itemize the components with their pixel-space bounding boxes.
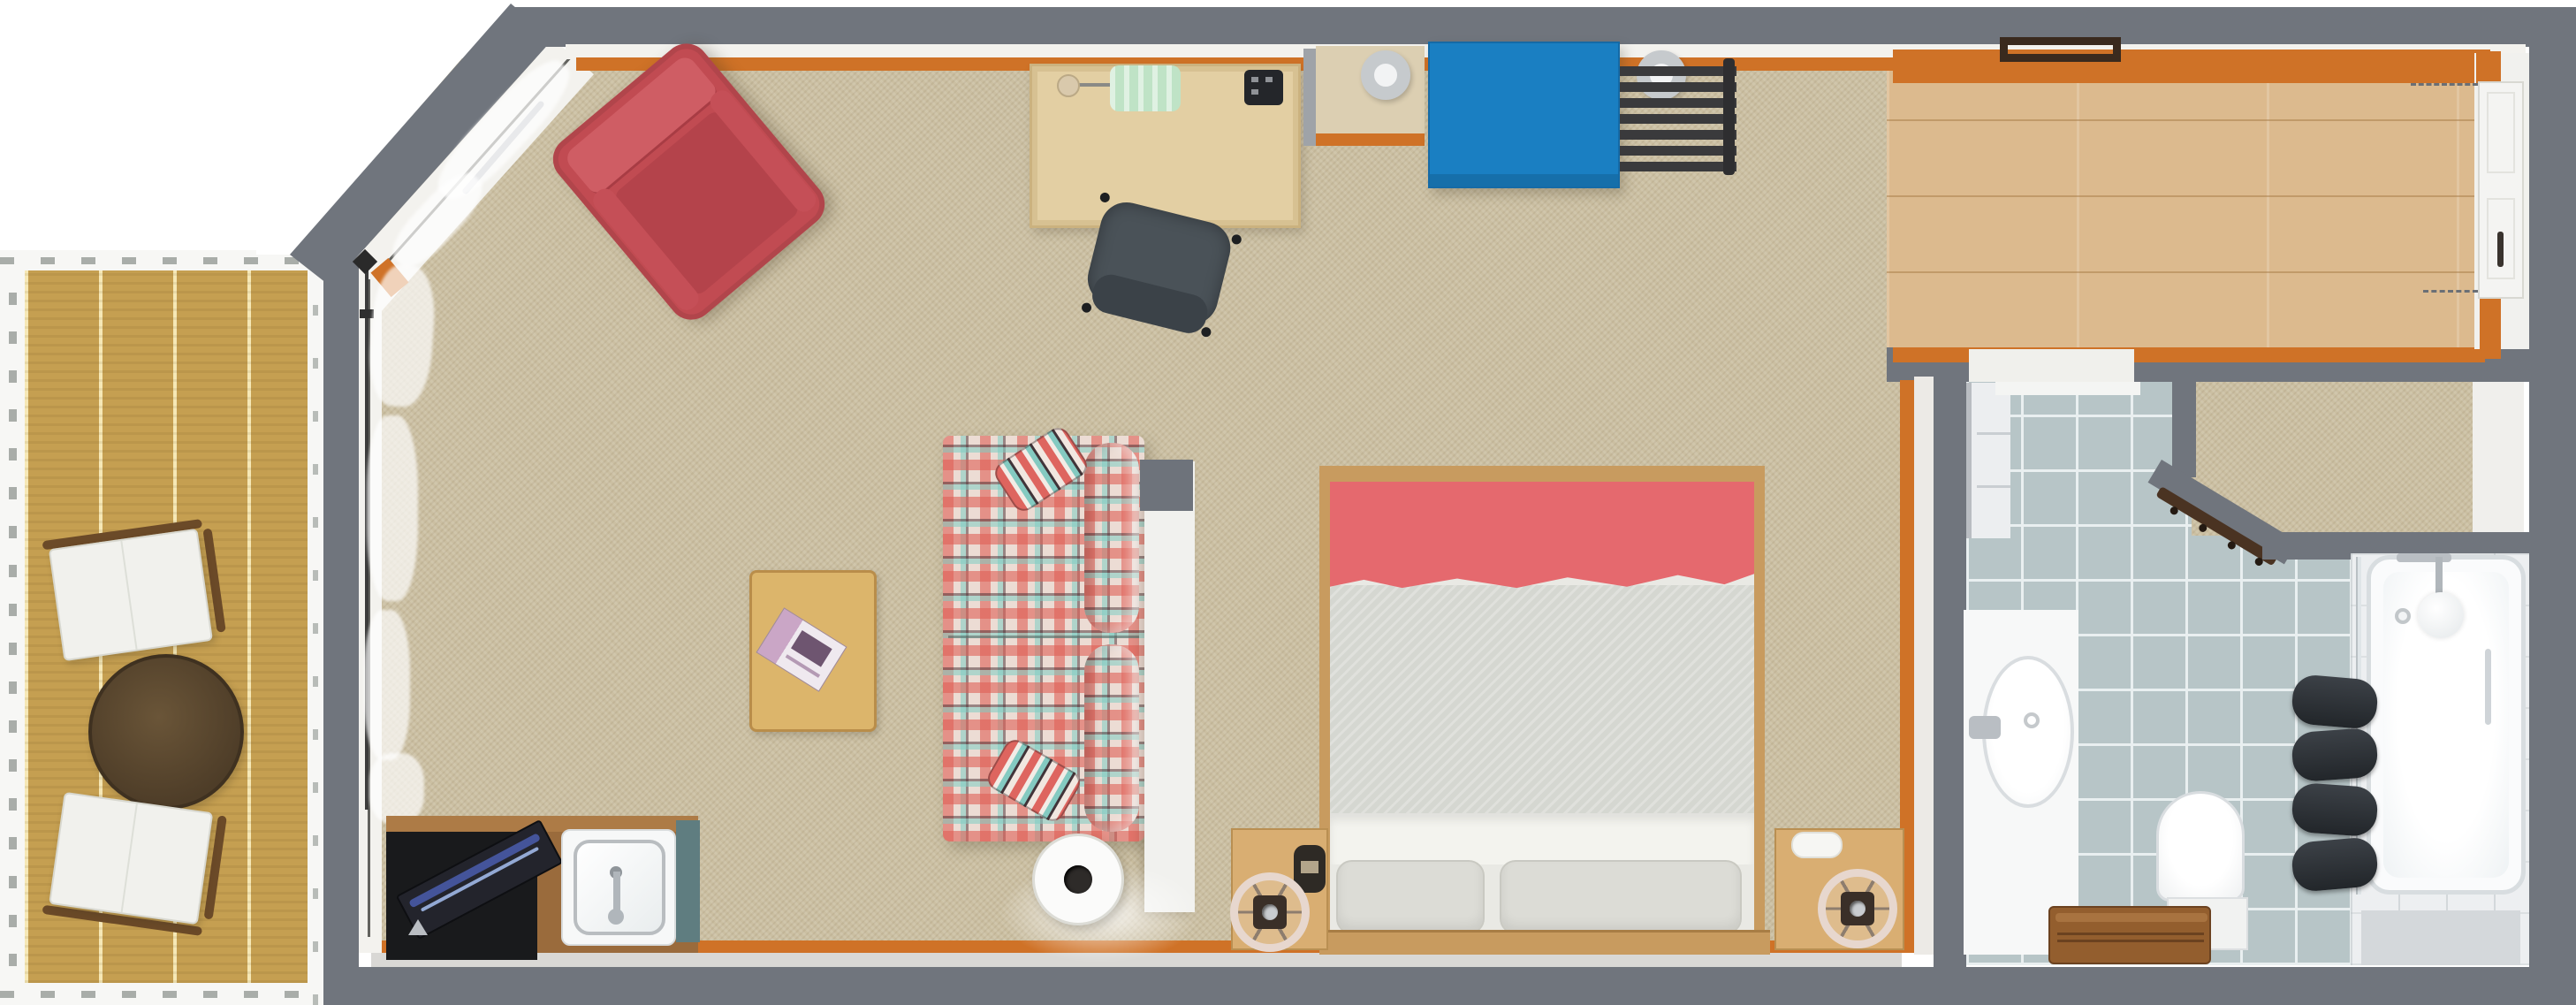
panel-trim bbox=[1316, 133, 1425, 146]
tv-stand-foot bbox=[408, 919, 428, 935]
wall-face-bedroom-east bbox=[1914, 377, 1934, 955]
wall-bedroom-east bbox=[1934, 371, 1966, 967]
lamp-finial bbox=[1262, 904, 1278, 920]
radiator bbox=[1620, 62, 1736, 171]
ceiling-spotlight bbox=[1361, 50, 1410, 100]
bed-headboard bbox=[1319, 930, 1770, 955]
bed-pillow bbox=[1500, 860, 1742, 934]
balcony-railing-inner bbox=[308, 250, 323, 1005]
sofa-cushion-seam bbox=[948, 636, 1139, 638]
entry-door-jamb bbox=[2476, 51, 2501, 83]
sofa-back-bolster bbox=[1084, 443, 1139, 633]
chair-caster bbox=[1200, 326, 1212, 338]
bed-foot-rail bbox=[1323, 466, 1765, 483]
sink-drain bbox=[2024, 712, 2040, 728]
balcony-railing-left bbox=[0, 250, 25, 1005]
shower-grab-bar bbox=[2485, 649, 2491, 725]
rolled-towel bbox=[2291, 782, 2379, 838]
floor-plan-scene bbox=[0, 0, 2576, 1005]
entry-wall-shelf bbox=[2000, 37, 2121, 62]
balcony-railing-bottom bbox=[0, 983, 308, 1005]
shelf-line bbox=[1977, 432, 2010, 435]
bench-slot bbox=[2057, 940, 2204, 942]
bed-duvet bbox=[1330, 585, 1754, 817]
sheer-curtain bbox=[364, 610, 410, 760]
bathtub-faucet bbox=[2397, 553, 2451, 562]
balcony-chair-top bbox=[41, 517, 234, 673]
towel-rack bbox=[2292, 677, 2381, 895]
alarm-clock-display bbox=[1301, 861, 1318, 873]
shelf-line bbox=[1977, 485, 2010, 488]
sink-faucet-spout bbox=[608, 909, 624, 925]
sheer-curtain bbox=[369, 753, 424, 824]
door-swing-dashes bbox=[2423, 290, 2478, 293]
bathroom-shelf-cabinet bbox=[1966, 383, 2010, 538]
teak-shower-bench bbox=[2048, 906, 2211, 964]
rolled-towel bbox=[2291, 674, 2380, 730]
wall-west bbox=[323, 262, 359, 1005]
door-panel bbox=[2487, 92, 2515, 173]
door-handle bbox=[2497, 232, 2504, 267]
wall-trim-hall bbox=[1893, 49, 2490, 83]
lamp-finial bbox=[1850, 901, 1866, 917]
rolled-towel bbox=[2291, 727, 2379, 783]
phone-key bbox=[1265, 77, 1273, 82]
round-side-table bbox=[1032, 834, 1124, 925]
phone-key bbox=[1251, 89, 1258, 95]
bench-slat bbox=[2055, 913, 2207, 922]
desk-phone bbox=[1244, 70, 1283, 105]
bed-side-rail bbox=[1754, 466, 1765, 955]
lamp-base bbox=[1253, 895, 1287, 929]
chair-caster bbox=[1231, 233, 1242, 245]
bathtub-globe-light bbox=[2418, 592, 2464, 638]
tissue-box bbox=[1791, 832, 1843, 858]
entry-hall-wood-floor bbox=[1887, 58, 2474, 349]
wall-panel-edge bbox=[1303, 49, 1316, 146]
nook-wall bbox=[2172, 382, 2196, 477]
balcony-chair-bottom bbox=[41, 782, 234, 938]
bed-pillow bbox=[1336, 860, 1485, 934]
entry-door-jamb bbox=[2480, 297, 2501, 359]
balcony-round-table bbox=[88, 654, 244, 810]
sheer-curtain bbox=[367, 415, 418, 601]
radiator-end-cap bbox=[1723, 58, 1735, 175]
door-swing-dashes bbox=[2411, 83, 2478, 86]
sink-faucet bbox=[1969, 716, 2001, 739]
lamp-base bbox=[1841, 892, 1874, 925]
bathtub-drain bbox=[2395, 608, 2411, 624]
nook-ledge bbox=[2473, 382, 2524, 532]
room-divider-cap bbox=[1140, 460, 1193, 511]
desk-lamp-base bbox=[1057, 74, 1080, 97]
side-table-center bbox=[1064, 865, 1092, 894]
bathroom-ledge bbox=[1995, 382, 2140, 395]
desk-lamp bbox=[1110, 65, 1181, 111]
toilet-bowl bbox=[2156, 791, 2245, 902]
chair-seat bbox=[49, 529, 213, 661]
wall-south bbox=[323, 967, 2576, 1005]
bed-sheet-fold bbox=[1330, 813, 1754, 864]
chair-seat bbox=[49, 792, 213, 925]
blue-storage-chest bbox=[1428, 42, 1620, 188]
sofa-back-bolster bbox=[1084, 644, 1139, 832]
table-lamp bbox=[1230, 872, 1310, 952]
bathroom-doorway-threshold bbox=[1969, 349, 2134, 382]
table-lamp bbox=[1818, 869, 1897, 948]
room-divider-panel bbox=[1144, 461, 1195, 912]
tub-floor-recess bbox=[2361, 910, 2520, 965]
phone-key bbox=[1251, 77, 1258, 82]
wall-east bbox=[2529, 7, 2576, 1005]
bench-slot bbox=[2057, 933, 2204, 935]
counter-side-panel bbox=[676, 820, 700, 942]
rolled-towel bbox=[2291, 836, 2380, 893]
